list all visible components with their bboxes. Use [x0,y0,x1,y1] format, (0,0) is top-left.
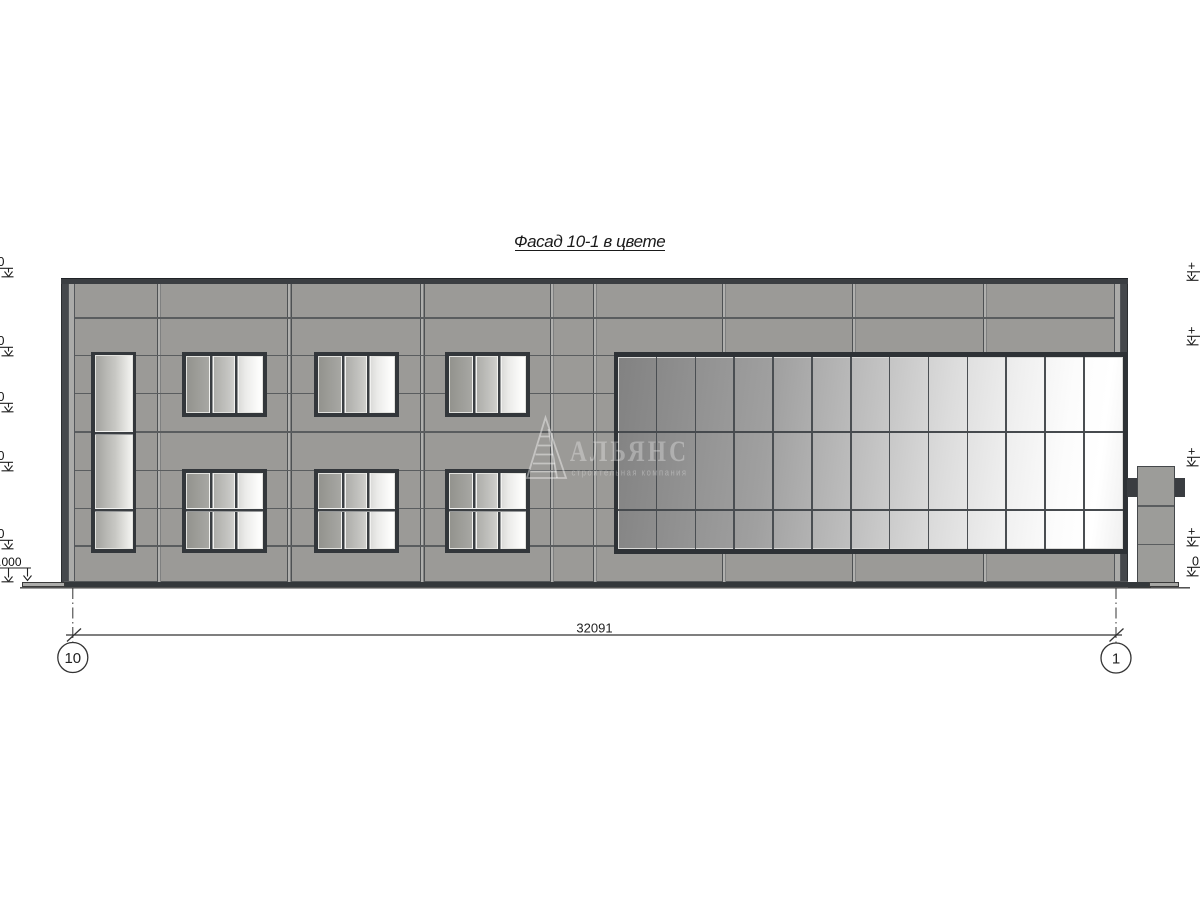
svg-text:0: 0 [0,334,5,348]
svg-text:1: 1 [1112,650,1120,667]
svg-text:+: + [1188,445,1195,459]
svg-text:10: 10 [64,650,81,667]
svg-text:0: 0 [0,527,5,541]
svg-text:+: + [1188,324,1195,338]
svg-text:+: + [1188,259,1195,273]
svg-text:0: 0 [0,390,5,404]
svg-text:+: + [1188,525,1195,539]
svg-text:строительная компания: строительная компания [571,468,687,478]
svg-text:0: 0 [0,255,5,269]
svg-text:АЛЬЯНС: АЛЬЯНС [570,434,689,467]
svg-text:-1.000: -1.000 [0,555,22,569]
svg-text:32091: 32091 [576,621,612,636]
svg-text:0: 0 [1192,555,1199,569]
svg-text:0: 0 [0,449,5,463]
